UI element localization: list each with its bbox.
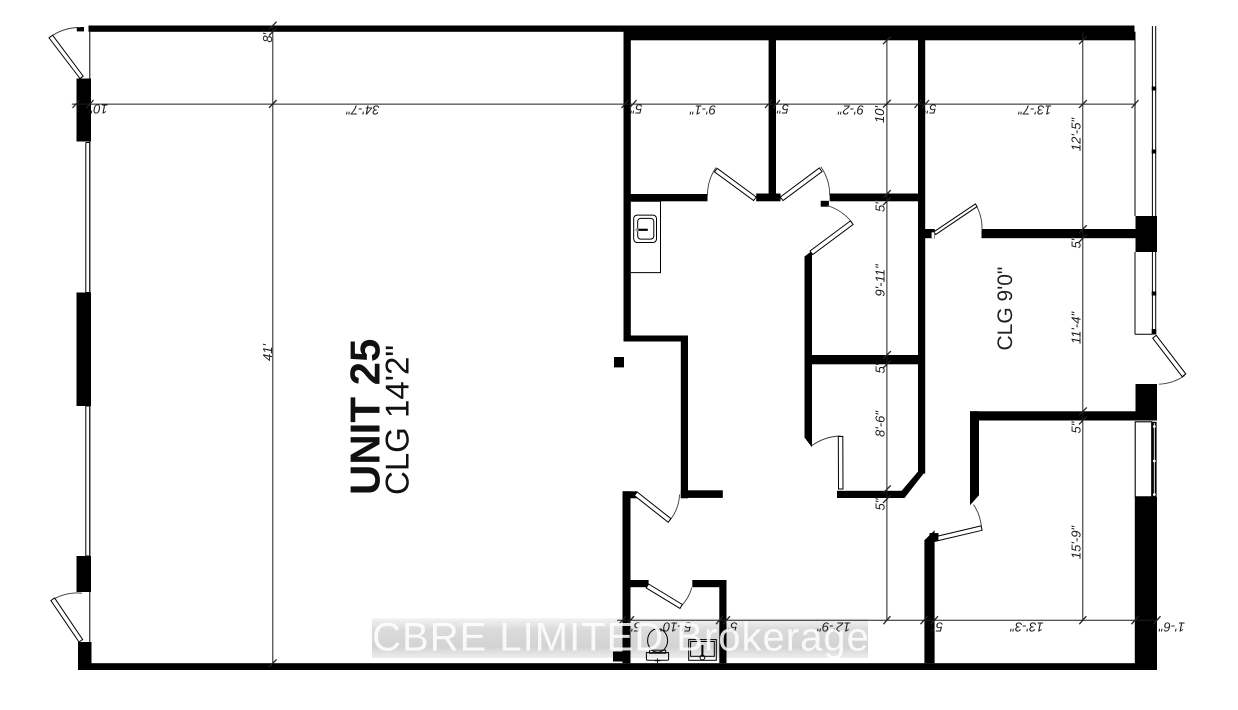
svg-text:8'-6": 8'-6" <box>873 410 888 437</box>
svg-text:5": 5" <box>873 360 888 373</box>
svg-text:1'-6": 1'-6" <box>1158 620 1185 635</box>
svg-text:5": 5" <box>629 102 642 117</box>
svg-text:8": 8" <box>260 29 275 42</box>
svg-text:CLG 14'2": CLG 14'2" <box>379 345 416 495</box>
svg-text:5": 5" <box>930 620 943 635</box>
svg-text:10": 10" <box>87 101 107 116</box>
svg-text:5": 5" <box>873 497 888 510</box>
svg-text:41': 41' <box>260 344 275 361</box>
svg-text:12'-5": 12'-5" <box>1068 117 1083 152</box>
svg-text:9'-1": 9'-1" <box>689 102 716 117</box>
svg-text:5": 5" <box>873 199 888 212</box>
svg-text:13'-3": 13'-3" <box>1009 620 1044 635</box>
svg-text:34'-7": 34'-7" <box>345 102 380 117</box>
svg-text:10': 10' <box>872 106 887 123</box>
svg-text:9'-2": 9'-2" <box>837 102 864 117</box>
svg-text:5": 5" <box>776 102 789 117</box>
svg-text:13'-7": 13'-7" <box>1017 102 1052 117</box>
svg-text:5": 5" <box>1068 235 1083 248</box>
svg-text:15'-9": 15'-9" <box>1068 525 1083 560</box>
svg-text:11'-4": 11'-4" <box>1068 311 1083 345</box>
svg-text:9'-11": 9'-11" <box>873 263 888 297</box>
svg-text:5": 5" <box>923 102 936 117</box>
svg-text:5": 5" <box>1068 420 1083 433</box>
svg-text:CLG 9'0": CLG 9'0" <box>994 267 1017 351</box>
svg-text:CBRE LIMITED Brokerage: CBRE LIMITED Brokerage <box>372 616 870 660</box>
